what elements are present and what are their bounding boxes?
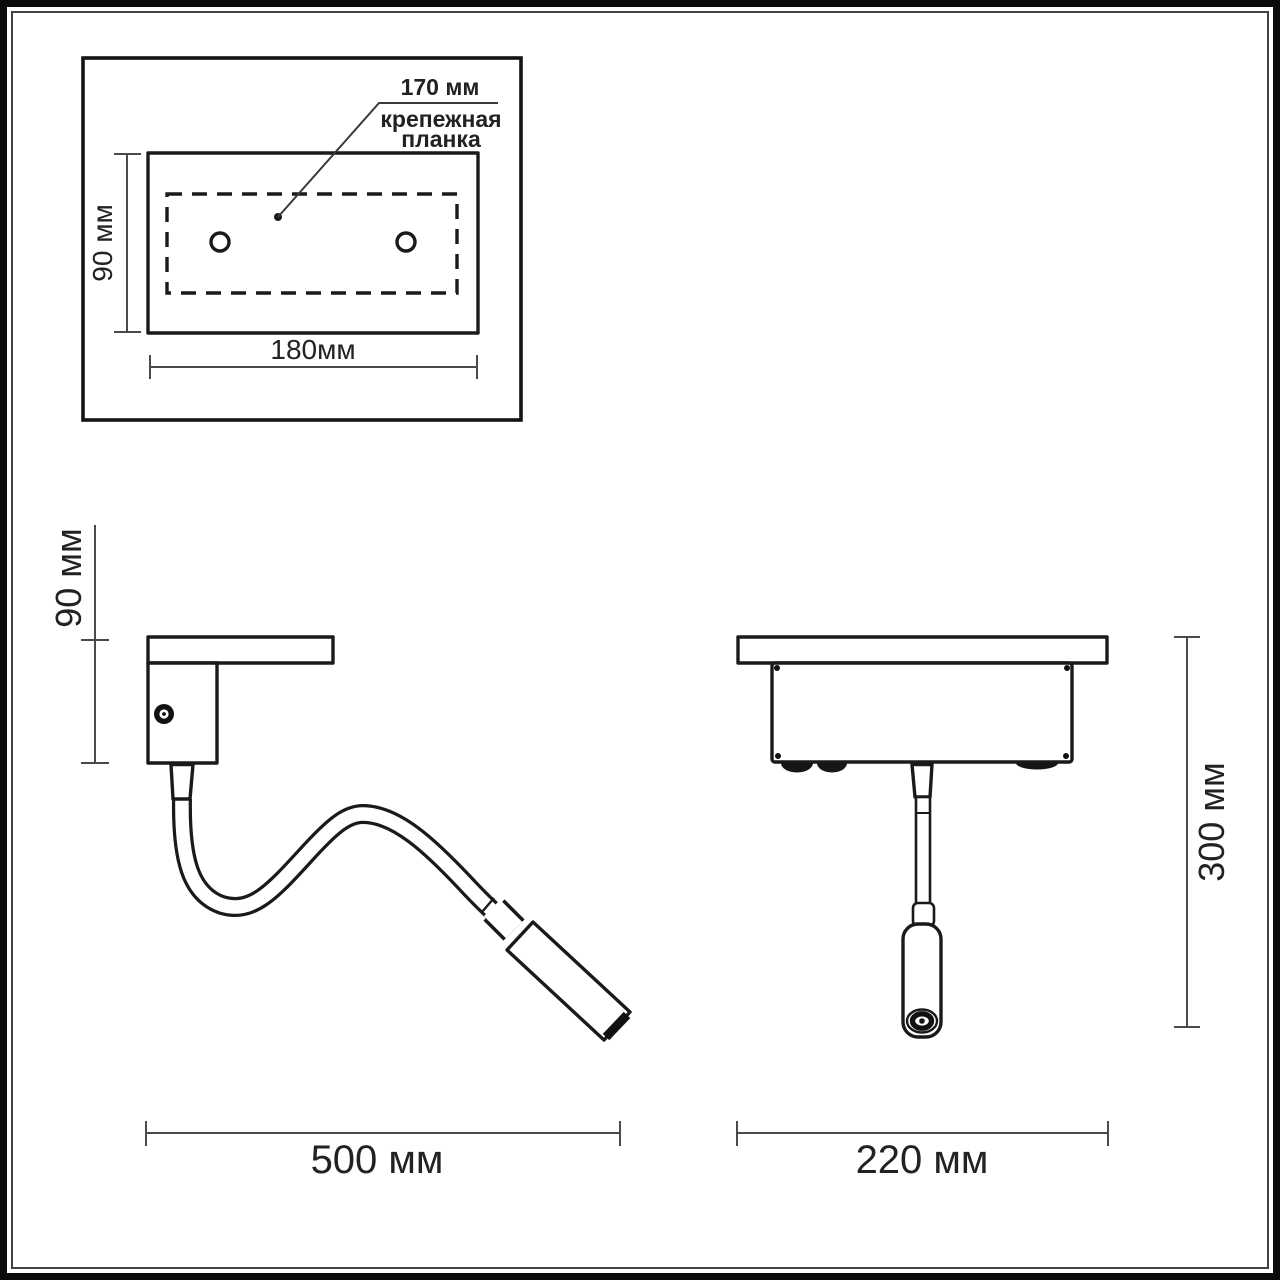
plate-outline — [148, 153, 478, 333]
bracket-stem-front — [912, 765, 932, 798]
lens-center — [919, 1018, 925, 1024]
front-height-label: 300 мм — [1191, 762, 1232, 882]
lamp-dimension-drawing: 170 мм крепежная планка 90 мм 180мм — [0, 0, 1280, 1280]
bracket-stem — [171, 765, 193, 800]
side-length-label: 500 мм — [311, 1138, 444, 1182]
side-height-label: 90 мм — [48, 528, 89, 628]
lamp-front-view: 300 мм 220 мм — [737, 637, 1232, 1182]
mounting-plate-inset: 170 мм крепежная планка 90 мм 180мм — [83, 58, 521, 420]
inset-width-label: 180мм — [270, 334, 355, 365]
lamp-side-view: 90 мм 500 мм — [48, 525, 630, 1182]
power-button — [154, 704, 174, 724]
lamp-head — [507, 922, 630, 1040]
driver-box-front — [772, 663, 1072, 762]
front-width-label: 220 мм — [856, 1138, 989, 1182]
gooseneck-arm — [182, 799, 497, 915]
callout-value-label: 170 мм — [401, 74, 480, 100]
top-plate-front — [738, 637, 1107, 663]
lamp-head-front — [903, 924, 941, 1037]
gooseneck-front — [913, 797, 934, 926]
head-collar — [492, 908, 514, 930]
callout-name-line2: планка — [401, 126, 481, 152]
inset-height-label: 90 мм — [87, 204, 118, 281]
top-plate-side — [148, 637, 333, 663]
